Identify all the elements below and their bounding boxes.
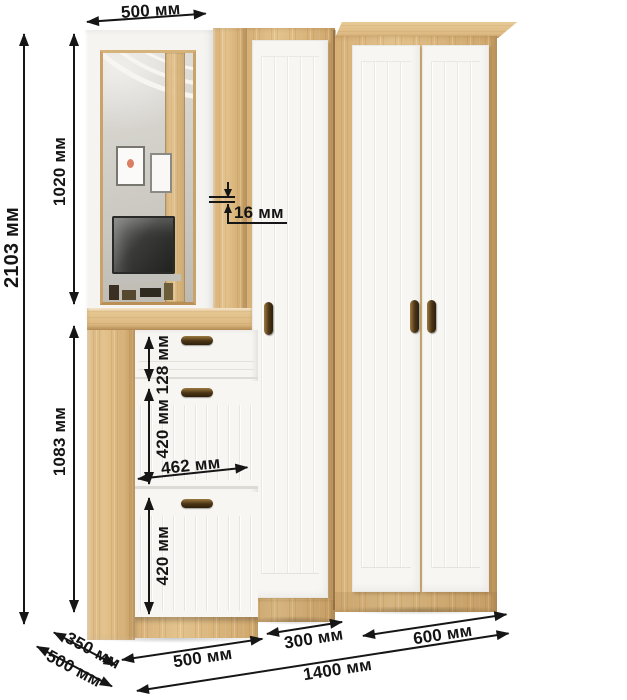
shoe-cabinet-side [87, 313, 135, 640]
dim-cabinet-height-arrow [69, 325, 79, 613]
diagram-canvas: 2103 мм 1020 мм 1083 мм 500 мм 128 мм 42… [0, 0, 627, 700]
dim-upper-flap-label: 420 мм [153, 399, 173, 458]
dim-total-height-label: 2103 мм [1, 207, 24, 288]
tv-reflection [112, 216, 175, 274]
door-planks [361, 61, 411, 568]
door-handle [264, 302, 273, 335]
door-planks [431, 61, 480, 568]
mirror [100, 50, 196, 305]
single-wardrobe-door [252, 40, 328, 598]
double-wardrobe [335, 36, 497, 612]
thickness-arrowhead [224, 189, 232, 198]
door-handle [427, 300, 436, 333]
mirror-glass [103, 53, 193, 302]
picture-frame-reflection [116, 146, 145, 186]
dim-drawer-height-label: 128 мм [153, 335, 173, 394]
tv-stand-reflection [107, 274, 181, 281]
dim-total-height-arrow [19, 33, 29, 625]
dim-cabinet-height-label: 1083 мм [50, 407, 70, 476]
dim-panel-thickness-label: 16 мм [234, 203, 284, 223]
picture-frame-reflection [150, 153, 172, 193]
dim-mirror-height-label: 1020 мм [50, 137, 70, 206]
door-handle [410, 300, 419, 333]
drawer-handle [181, 336, 213, 345]
dim-mirror-height-arrow [69, 33, 79, 305]
shoe-cabinet-top [87, 308, 252, 330]
shoe-cabinet-plinth [135, 617, 258, 638]
double-wardrobe-door-left [352, 45, 420, 592]
dim-lower-flap-label: 420 мм [153, 526, 173, 585]
thickness-arrowhead [224, 204, 232, 213]
flap-handle [181, 388, 213, 397]
single-wardrobe [247, 28, 335, 622]
mirror-frame-panel [85, 30, 213, 320]
flap-handle [181, 499, 213, 508]
thickness-tick [209, 201, 235, 203]
double-wardrobe-door-right [422, 45, 489, 592]
decor-reflection [103, 281, 185, 302]
